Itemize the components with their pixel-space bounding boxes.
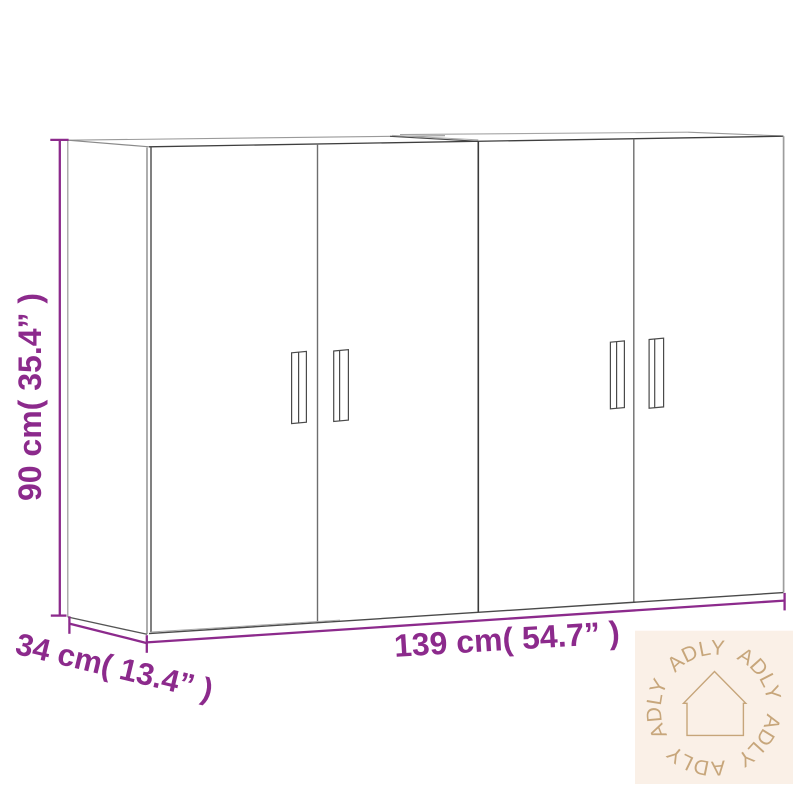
svg-text:90 cm( 35.4” ): 90 cm( 35.4” ) xyxy=(12,293,48,501)
